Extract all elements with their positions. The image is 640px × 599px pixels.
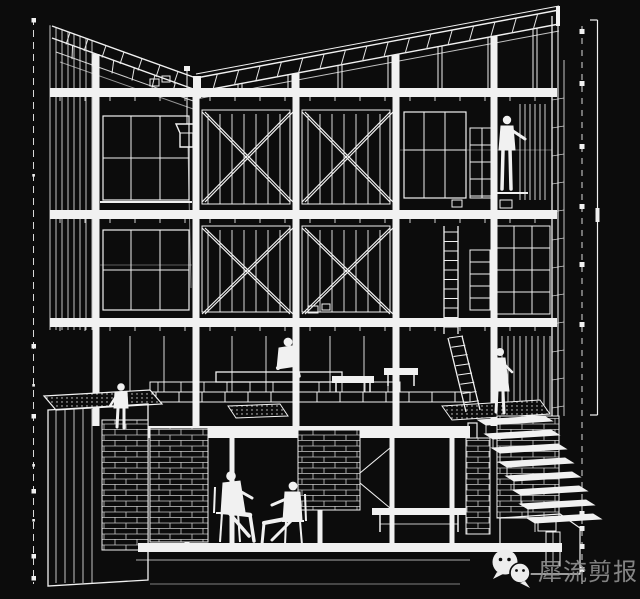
screenshot-canvas: 犀流剪报: [0, 0, 640, 599]
window-mullions: [100, 104, 550, 414]
watermark-text: 犀流剪报: [538, 552, 638, 587]
watermark: 犀流剪报: [490, 548, 638, 590]
section-drawing: [0, 0, 640, 599]
left-facade-layers: [50, 25, 92, 330]
dimension-line: [590, 20, 600, 415]
wechat-icon: [490, 548, 534, 590]
